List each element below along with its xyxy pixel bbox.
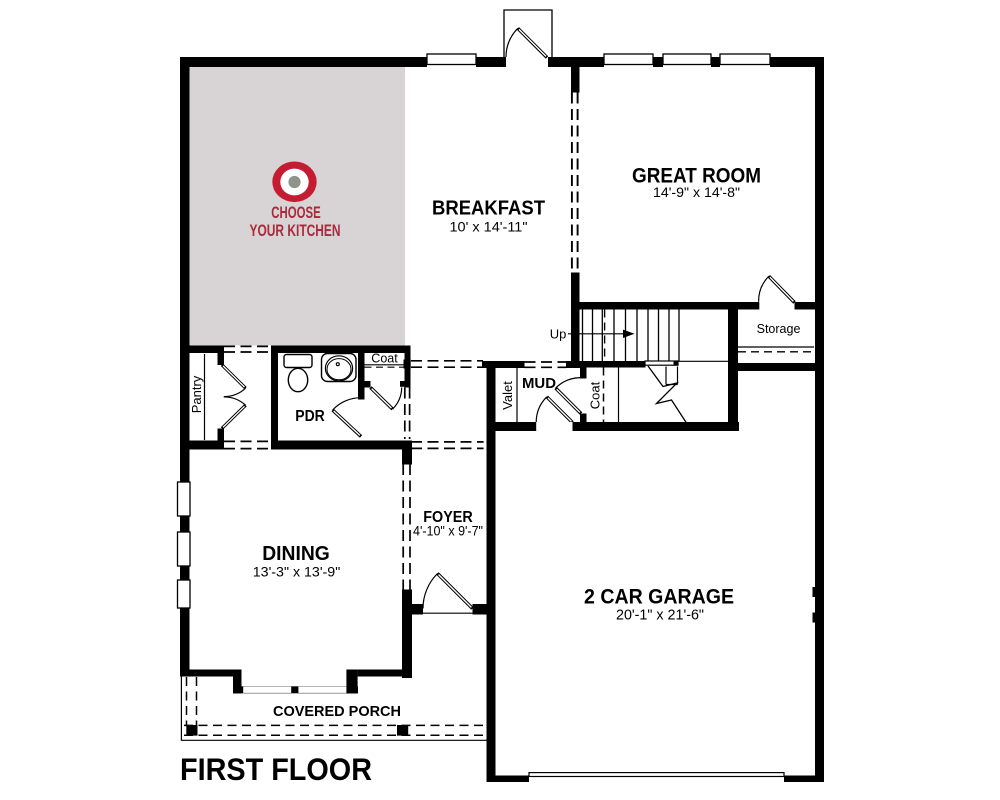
svg-text:COVERED PORCH: COVERED PORCH: [273, 703, 401, 720]
svg-text:Storage: Storage: [757, 322, 801, 336]
svg-text:FIRST FLOOR: FIRST FLOOR: [180, 751, 372, 787]
svg-text:MUD: MUD: [522, 375, 556, 392]
svg-text:CHOOSE: CHOOSE: [271, 203, 321, 222]
svg-text:Up: Up: [550, 327, 567, 342]
svg-text:Valet: Valet: [500, 381, 515, 410]
svg-text:4'-10" x 9'-7": 4'-10" x 9'-7": [413, 523, 483, 538]
svg-text:14'-9" x 14'-8": 14'-9" x 14'-8": [653, 185, 740, 200]
svg-text:DINING: DINING: [262, 543, 330, 565]
svg-text:2 CAR GARAGE: 2 CAR GARAGE: [584, 585, 734, 609]
svg-text:Coat: Coat: [588, 381, 603, 409]
svg-text:10' x 14'-11": 10' x 14'-11": [450, 220, 528, 235]
svg-text:13'-3" x 13'-9": 13'-3" x 13'-9": [253, 564, 341, 580]
svg-text:Coat: Coat: [371, 352, 398, 366]
svg-text:YOUR KITCHEN: YOUR KITCHEN: [250, 221, 341, 240]
svg-text:20'-1" x 21'-6": 20'-1" x 21'-6": [616, 608, 704, 624]
svg-text:Pantry: Pantry: [189, 375, 204, 413]
svg-text:BREAKFAST: BREAKFAST: [432, 198, 545, 220]
svg-text:PDR: PDR: [295, 408, 325, 425]
